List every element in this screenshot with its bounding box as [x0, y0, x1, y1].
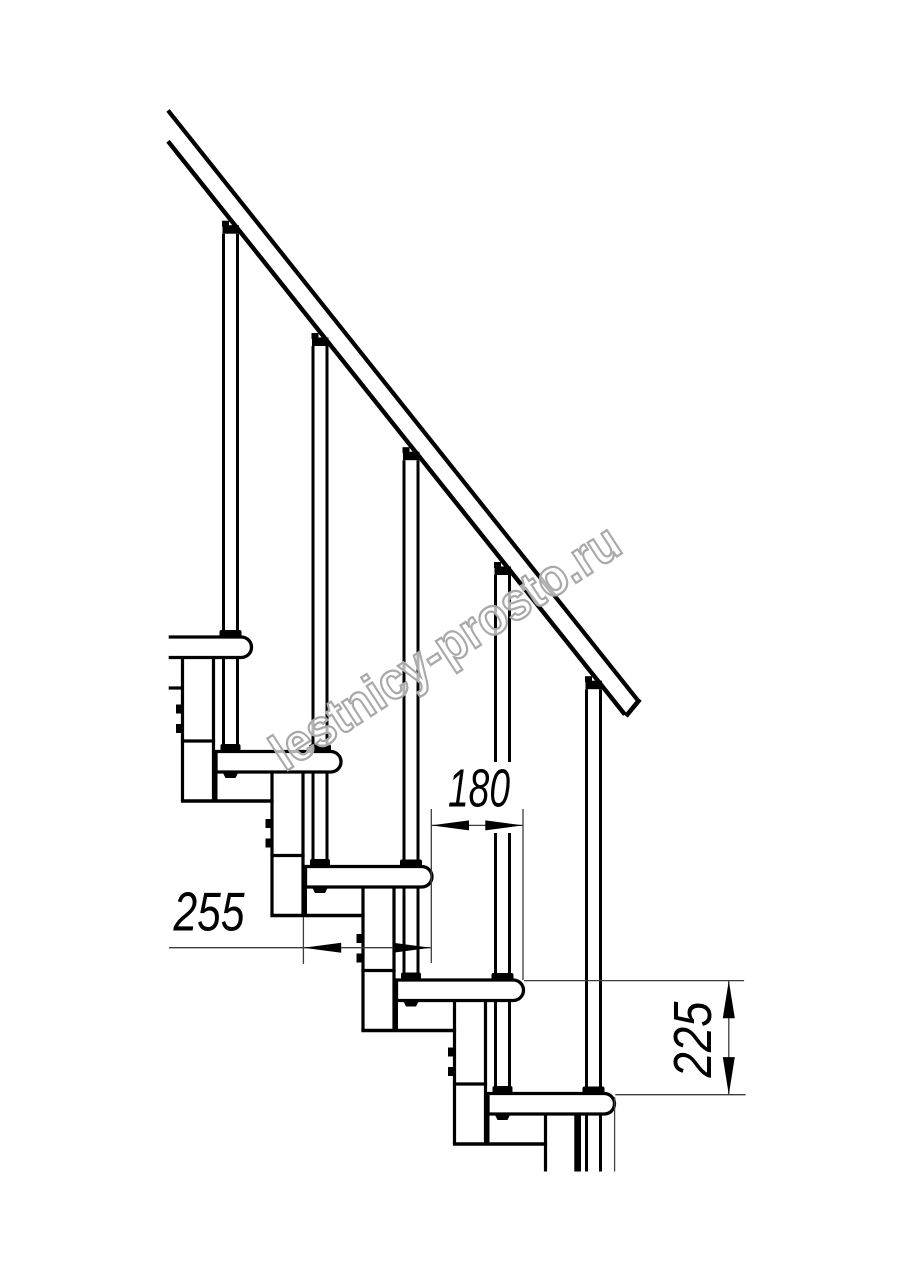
- svg-text:180: 180: [448, 759, 510, 819]
- svg-text:225: 225: [663, 1001, 723, 1079]
- svg-text:255: 255: [173, 881, 245, 943]
